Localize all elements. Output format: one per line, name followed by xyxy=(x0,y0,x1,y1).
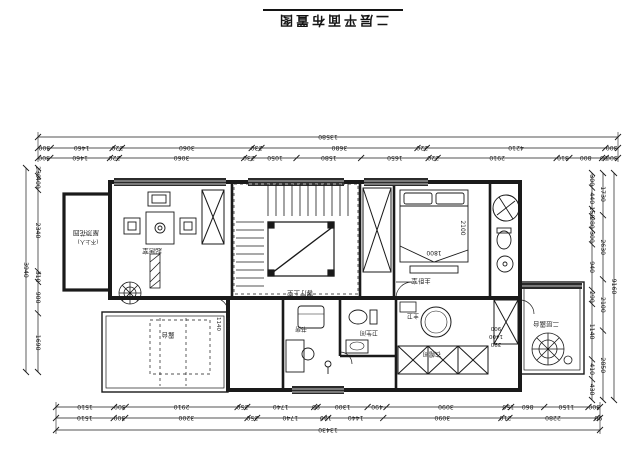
dim-right-mid: 2100 xyxy=(599,297,606,313)
dimension-layer: 1358030014602203060230368022042103003001… xyxy=(0,0,630,472)
dim-top-row3: 2910 xyxy=(489,154,505,161)
dim-bottom-row1: 1510 xyxy=(77,403,93,410)
dim-right-mid: 2850 xyxy=(599,357,606,373)
label-bed-length: 2100 xyxy=(459,220,466,235)
dim-left-total: 3940 xyxy=(22,262,29,278)
dim-bottom-row1: 2910 xyxy=(174,403,190,410)
dim-bottom-row1: 490 xyxy=(371,403,383,410)
label-roof-garden: 屋顶花园 xyxy=(73,229,99,238)
dim-right-row: 300 xyxy=(588,231,595,243)
dim-right-total: 9160 xyxy=(610,279,617,295)
dim-right-row: 300 xyxy=(588,174,595,186)
dim-bottom-row2: 1740 xyxy=(282,414,298,421)
label-stair-void: 客厅上空 xyxy=(287,289,314,298)
dim-top-row2: 3060 xyxy=(179,144,195,151)
dim-bottom-row1: 250 xyxy=(236,403,248,410)
label-terrace-note-1: 1140 xyxy=(215,317,221,331)
dim-bottom-row1: 150 xyxy=(502,403,514,410)
dim-right-row: 410 xyxy=(588,363,595,375)
dim-right-row: 440 xyxy=(588,192,595,204)
dim-top-row3: 1650 xyxy=(387,154,403,161)
label-study: 书房 xyxy=(295,325,307,333)
dim-left-row: 2340 xyxy=(34,223,41,239)
dim-bottom-row1: 1740 xyxy=(273,403,289,410)
label-master-bedroom: 主卧室 xyxy=(411,277,431,286)
label-terrace-right: 二层露台 xyxy=(533,320,559,329)
label-terrace-left: 露台 xyxy=(162,331,175,340)
dim-bottom-row2: 2280 xyxy=(545,414,561,421)
dim-bottom-row1: 1300 xyxy=(335,403,351,410)
dim-bottom-row2: 1440 xyxy=(348,414,364,421)
label-rail-note-3: 390 xyxy=(490,341,501,347)
dim-top-row2: 220 xyxy=(111,144,123,151)
dim-right-mid: 2630 xyxy=(599,239,606,255)
dim-bottom-row1: 1150 xyxy=(558,403,574,410)
label-family-room: 起居室 xyxy=(142,247,162,256)
dim-top-row3: 3060 xyxy=(174,154,190,161)
dim-top-row2: 3680 xyxy=(332,144,348,151)
dim-right-mid: 1730 xyxy=(599,186,606,202)
label-bed-width: 1800 xyxy=(426,249,441,256)
dim-top-total: 13580 xyxy=(318,133,338,140)
dim-left-row: 310 xyxy=(34,271,41,283)
dim-top-row2: 230 xyxy=(251,144,263,151)
dim-top-row3: 1050 xyxy=(267,154,283,161)
dim-left-row: 1690 xyxy=(34,335,41,351)
dim-bottom-total: 13430 xyxy=(318,426,338,433)
dim-top-row3: 1460 xyxy=(72,154,88,161)
dim-bottom-row2: 250 xyxy=(246,414,258,421)
label-rail-note-1: 900 xyxy=(490,325,501,331)
dim-bottom-row2: 3090 xyxy=(434,414,450,421)
dim-top-row3: 220 xyxy=(427,154,439,161)
dim-left-row: 900 xyxy=(34,292,41,304)
dim-top-row2: 220 xyxy=(416,144,428,151)
dim-bottom-row1: 3090 xyxy=(438,403,454,410)
label-roof-garden-sub: (不上人) xyxy=(78,238,99,246)
dim-top-row3: 230 xyxy=(243,154,255,161)
dim-bottom-row1: 860 xyxy=(522,403,534,410)
dim-top-row3: 220 xyxy=(109,154,121,161)
floorplan-sheet: 二层平面布置图 xyxy=(0,0,630,472)
dim-top-row2: 4210 xyxy=(508,144,524,151)
dim-right-row: 940 xyxy=(588,261,595,273)
label-toilet-room: 卫生间 xyxy=(360,329,378,337)
label-closet: 衣帽间 xyxy=(423,350,441,358)
label-rail-note-2: 1400 xyxy=(489,333,503,339)
dim-top-row3: 800 xyxy=(580,154,592,161)
dim-right-row: 430 xyxy=(588,384,595,396)
label-terrace-note-2: 1190 xyxy=(224,317,230,331)
label-master-bath: 主卫 xyxy=(407,312,419,320)
dim-top-row2: 1460 xyxy=(74,144,90,151)
dim-bottom-row2: 3200 xyxy=(178,414,194,421)
dim-top-row3: 1580 xyxy=(321,154,337,161)
dim-bottom-row2: 1510 xyxy=(77,414,93,421)
dim-right-row: 1140 xyxy=(588,324,595,340)
